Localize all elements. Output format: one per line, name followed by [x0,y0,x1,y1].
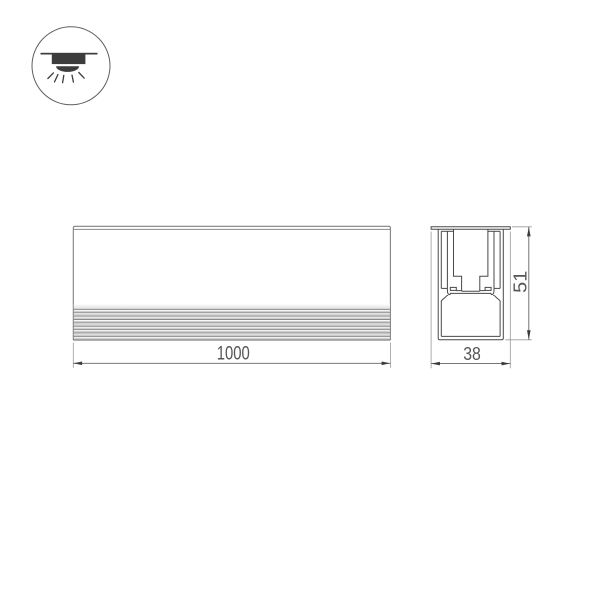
svg-text:38: 38 [463,343,481,364]
svg-text:51: 51 [510,271,530,293]
svg-text:1000: 1000 [217,344,250,365]
